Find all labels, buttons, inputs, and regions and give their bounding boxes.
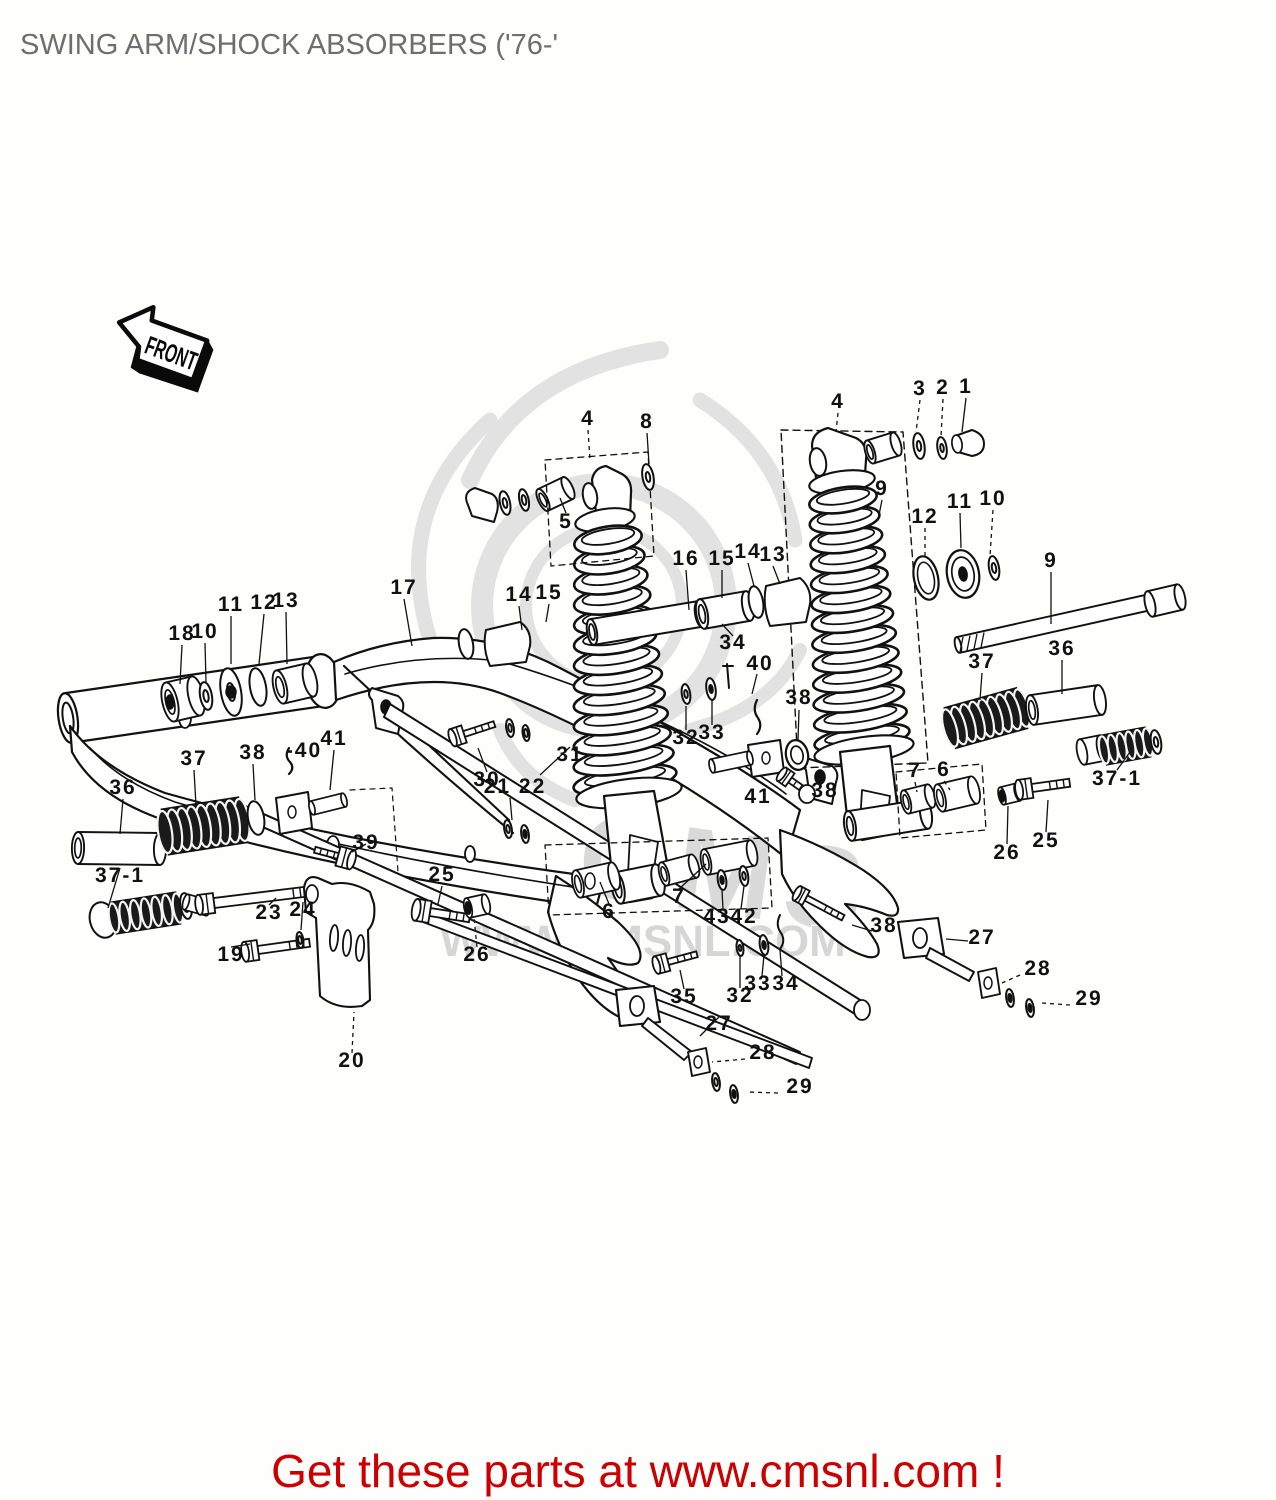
svg-text:28: 28 (749, 1041, 776, 1064)
svg-text:11: 11 (947, 490, 973, 513)
svg-text:37: 37 (968, 650, 995, 673)
svg-text:38: 38 (785, 686, 812, 709)
svg-text:10: 10 (191, 620, 218, 643)
svg-text:34: 34 (719, 631, 746, 654)
svg-text:37-1: 37-1 (1092, 767, 1142, 790)
svg-text:8: 8 (640, 410, 654, 433)
svg-text:21 22: 21 22 (484, 775, 547, 798)
svg-text:29: 29 (786, 1075, 813, 1098)
svg-text:25: 25 (1032, 829, 1059, 852)
svg-text:26: 26 (993, 841, 1020, 864)
svg-text:16: 16 (672, 547, 699, 570)
svg-text:15: 15 (708, 547, 735, 570)
svg-text:14: 14 (505, 583, 532, 606)
svg-text:14: 14 (734, 540, 761, 563)
svg-text:7: 7 (908, 759, 922, 782)
svg-text:11: 11 (218, 593, 244, 616)
svg-text:38: 38 (811, 779, 838, 802)
svg-text:36: 36 (1048, 637, 1075, 660)
svg-text:29: 29 (1075, 987, 1102, 1010)
svg-text:41: 41 (320, 727, 347, 750)
svg-text:31: 31 (556, 743, 583, 766)
svg-text:37: 37 (180, 747, 207, 770)
svg-text:38: 38 (239, 741, 266, 764)
svg-text:34: 34 (772, 972, 799, 995)
svg-text:27: 27 (968, 926, 995, 949)
svg-text:9: 9 (875, 477, 889, 500)
svg-text:12: 12 (911, 505, 938, 528)
svg-text:5: 5 (559, 510, 573, 533)
svg-text:13: 13 (759, 543, 786, 566)
svg-text:39: 39 (352, 831, 379, 854)
svg-text:33: 33 (744, 972, 771, 995)
svg-text:6: 6 (937, 758, 951, 781)
svg-text:-40: -40 (286, 739, 322, 762)
svg-text:42: 42 (730, 905, 757, 928)
svg-text:43: 43 (703, 905, 730, 928)
svg-text:17: 17 (390, 576, 417, 599)
svg-text:4: 4 (831, 390, 845, 413)
svg-text:1: 1 (959, 375, 973, 398)
svg-text:40: 40 (746, 652, 773, 675)
svg-text:3: 3 (913, 377, 927, 400)
svg-text:2: 2 (936, 376, 950, 399)
svg-text:10: 10 (979, 487, 1006, 510)
svg-text:38: 38 (870, 914, 897, 937)
svg-text:9: 9 (1044, 549, 1058, 572)
svg-text:15: 15 (535, 581, 562, 604)
svg-text:4: 4 (581, 407, 595, 430)
svg-text:25: 25 (428, 863, 455, 886)
svg-text:27: 27 (705, 1012, 732, 1035)
svg-text:37-1: 37-1 (95, 864, 145, 887)
svg-text:13: 13 (272, 589, 299, 612)
svg-text:36: 36 (109, 776, 136, 799)
svg-text:28: 28 (1024, 957, 1051, 980)
svg-text:41: 41 (744, 785, 771, 808)
